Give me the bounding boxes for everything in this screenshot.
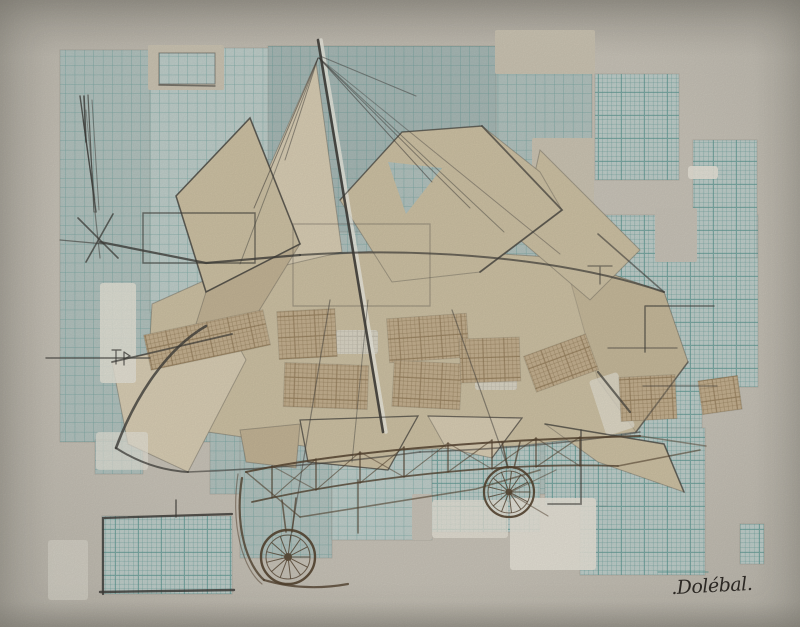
paper-grain-texture (0, 0, 800, 627)
collage-scene: .Dolébal. (0, 0, 800, 627)
artwork-photo: .Dolébal. (0, 0, 800, 627)
